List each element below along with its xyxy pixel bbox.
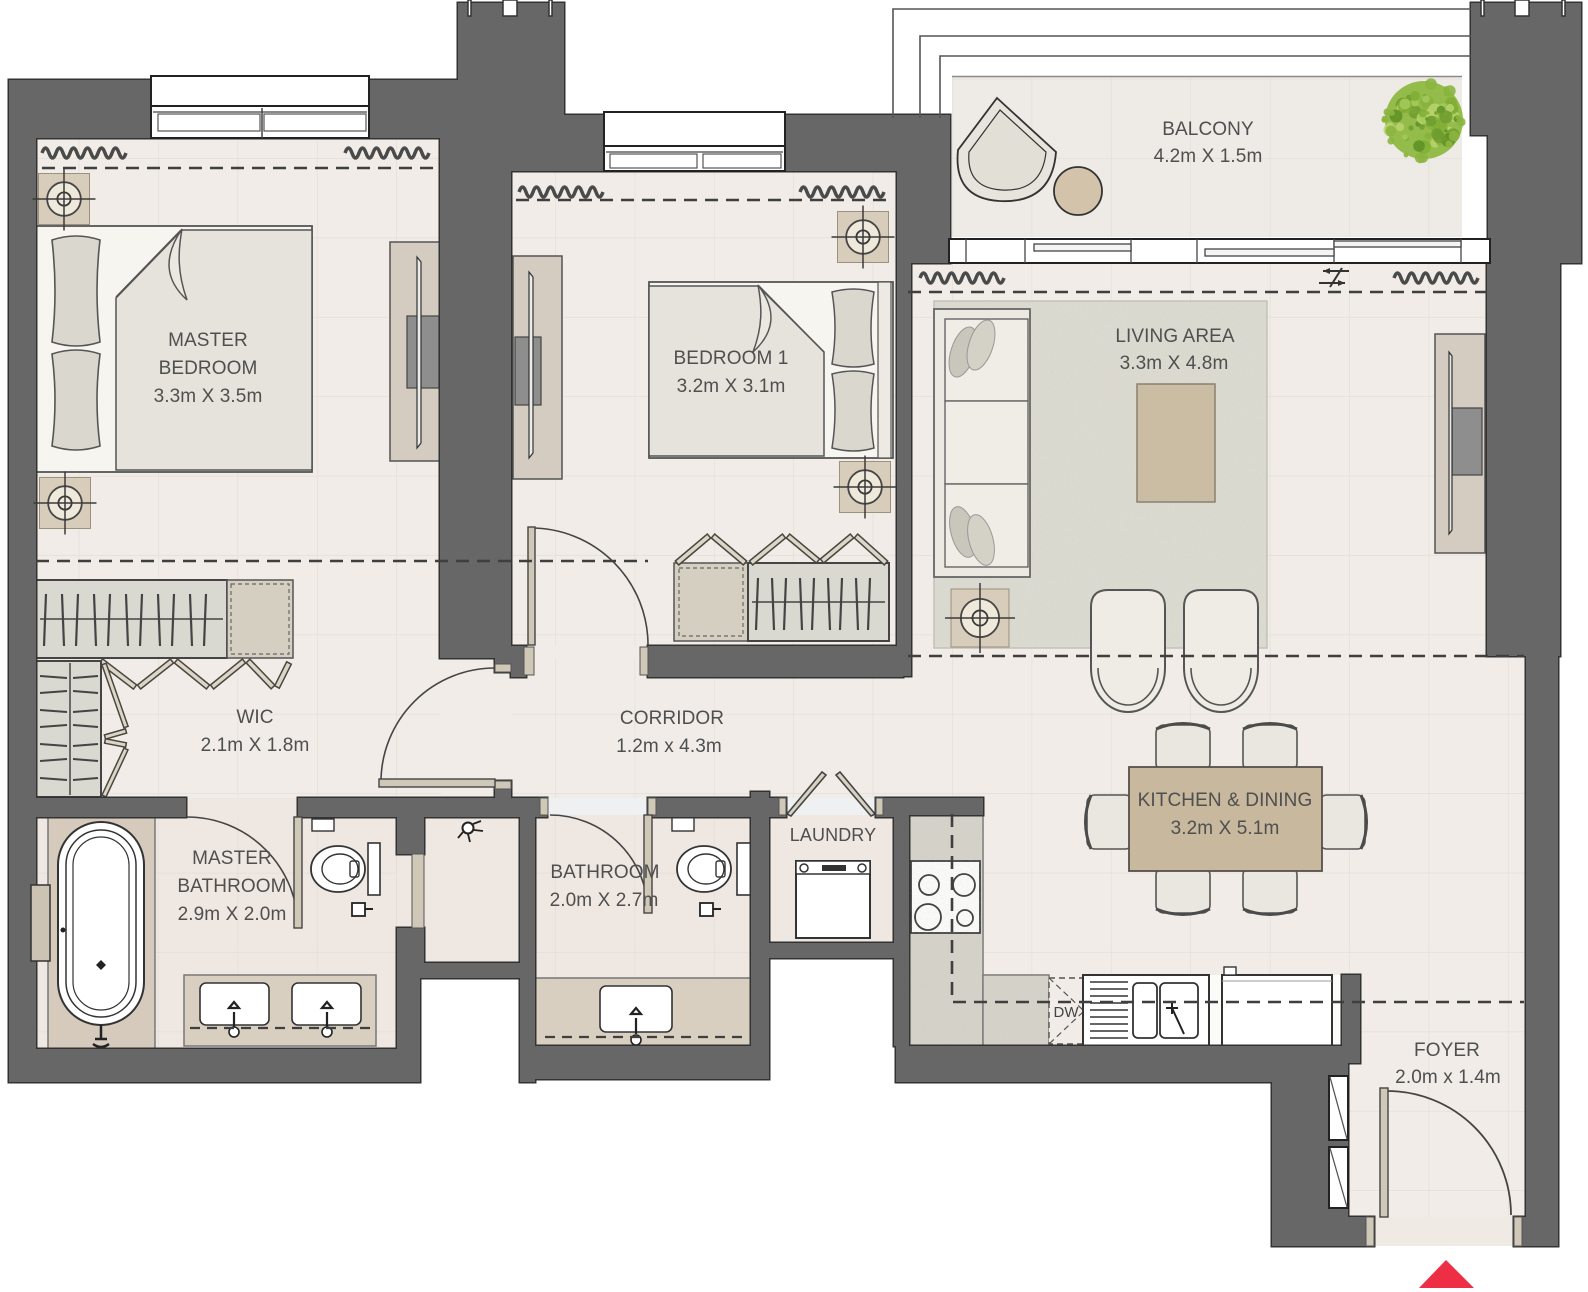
svg-text:BATHROOM: BATHROOM <box>550 862 659 883</box>
svg-text:3.3m X 4.8m: 3.3m X 4.8m <box>1120 353 1229 374</box>
svg-text:BATHROOM: BATHROOM <box>177 876 286 897</box>
svg-text:DW: DW <box>1054 1004 1080 1021</box>
svg-text:2.0m x 1.4m: 2.0m x 1.4m <box>1395 1067 1501 1088</box>
svg-text:4.2m X 1.5m: 4.2m X 1.5m <box>1154 146 1263 167</box>
svg-text:1.2m x 4.3m: 1.2m x 4.3m <box>616 736 722 757</box>
svg-text:LIVING AREA: LIVING AREA <box>1115 326 1235 347</box>
svg-text:3.2m X 5.1m: 3.2m X 5.1m <box>1171 818 1280 839</box>
svg-text:BALCONY: BALCONY <box>1162 119 1254 140</box>
svg-text:2.9m X 2.0m: 2.9m X 2.0m <box>178 904 287 925</box>
svg-text:BEDROOM 1: BEDROOM 1 <box>674 348 789 369</box>
svg-text:2.0m X 2.7m: 2.0m X 2.7m <box>550 890 659 911</box>
svg-text:3.2m X 3.1m: 3.2m X 3.1m <box>677 376 786 397</box>
svg-text:2.1m X 1.8m: 2.1m X 1.8m <box>201 735 310 756</box>
svg-text:LAUNDRY: LAUNDRY <box>790 825 876 845</box>
svg-text:3.3m X 3.5m: 3.3m X 3.5m <box>154 386 263 407</box>
svg-text:MASTER: MASTER <box>168 330 248 351</box>
svg-text:BEDROOM: BEDROOM <box>159 358 258 379</box>
svg-text:FOYER: FOYER <box>1414 1040 1480 1061</box>
svg-text:WIC: WIC <box>236 707 273 728</box>
svg-text:MASTER: MASTER <box>192 848 272 869</box>
svg-text:CORRIDOR: CORRIDOR <box>620 708 724 729</box>
svg-text:KITCHEN & DINING: KITCHEN & DINING <box>1138 790 1313 811</box>
